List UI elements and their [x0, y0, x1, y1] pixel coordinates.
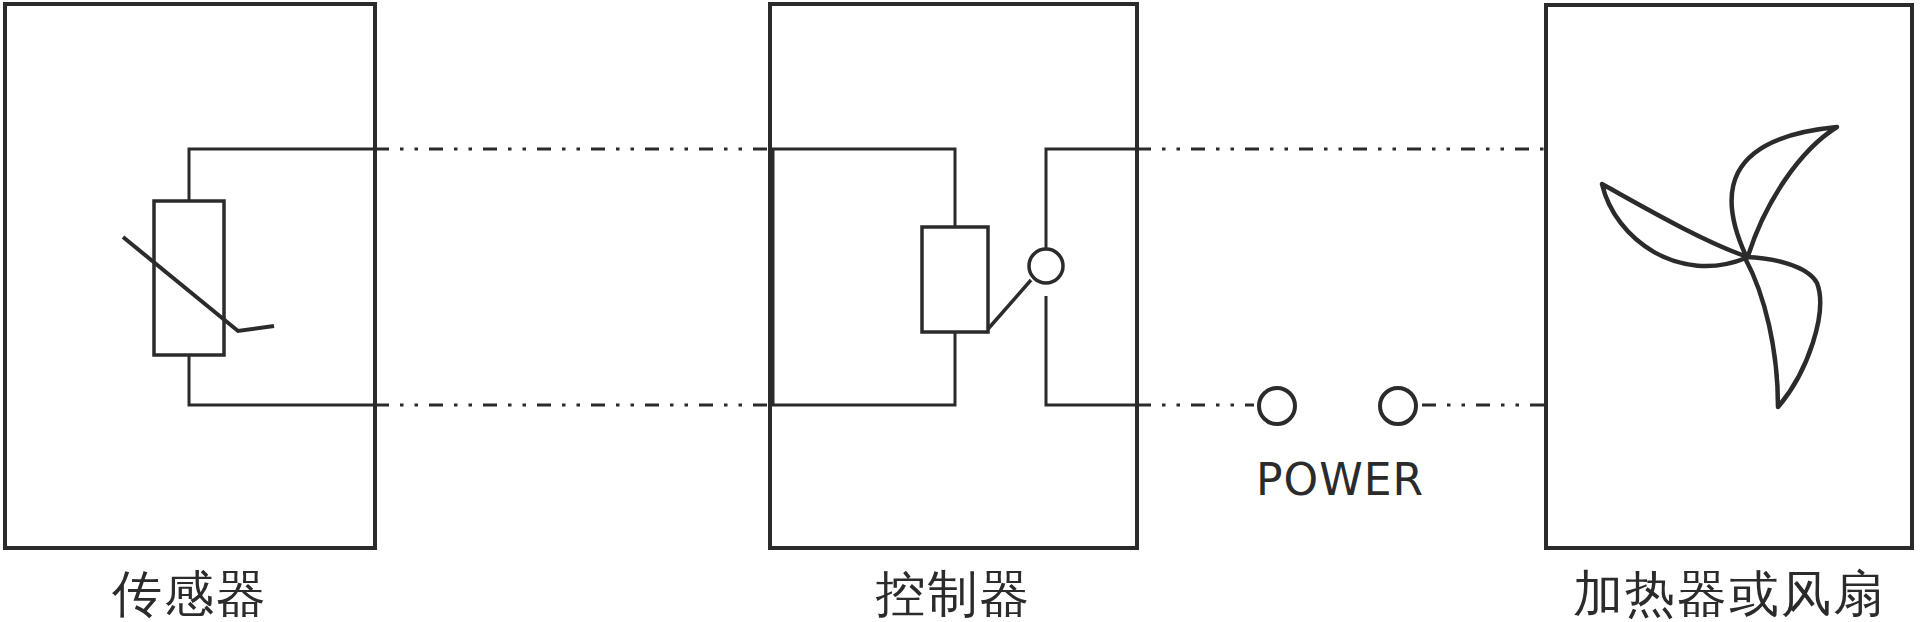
relay-coil-icon	[922, 227, 988, 332]
controller-coil-loop	[773, 149, 955, 405]
thermistor-icon	[154, 201, 224, 355]
sensor-box	[5, 4, 375, 548]
power-terminal-icon-1	[1259, 388, 1295, 424]
switch-lever	[988, 280, 1031, 329]
fan-blade-top	[1732, 127, 1837, 256]
fan-icon	[1602, 127, 1837, 407]
thermistor-strike-line	[123, 237, 274, 331]
switch-contact-icon	[1029, 249, 1063, 283]
wiring-diagram	[0, 0, 1920, 622]
fan-blade-left	[1602, 184, 1746, 266]
load-label: 加热器或风扇	[1546, 568, 1912, 621]
power-label: POWER	[1237, 458, 1443, 502]
controller-label: 控制器	[770, 568, 1137, 621]
controller-box	[770, 4, 1137, 548]
sensor-circuit-loop	[189, 149, 375, 405]
diagram-canvas: 传感器 控制器 加热器或风扇 POWER	[0, 0, 1920, 622]
sensor-label: 传感器	[5, 568, 375, 621]
load-box	[1546, 5, 1912, 548]
fan-blade-bottom	[1745, 257, 1820, 407]
power-terminal-icon-2	[1380, 388, 1416, 424]
